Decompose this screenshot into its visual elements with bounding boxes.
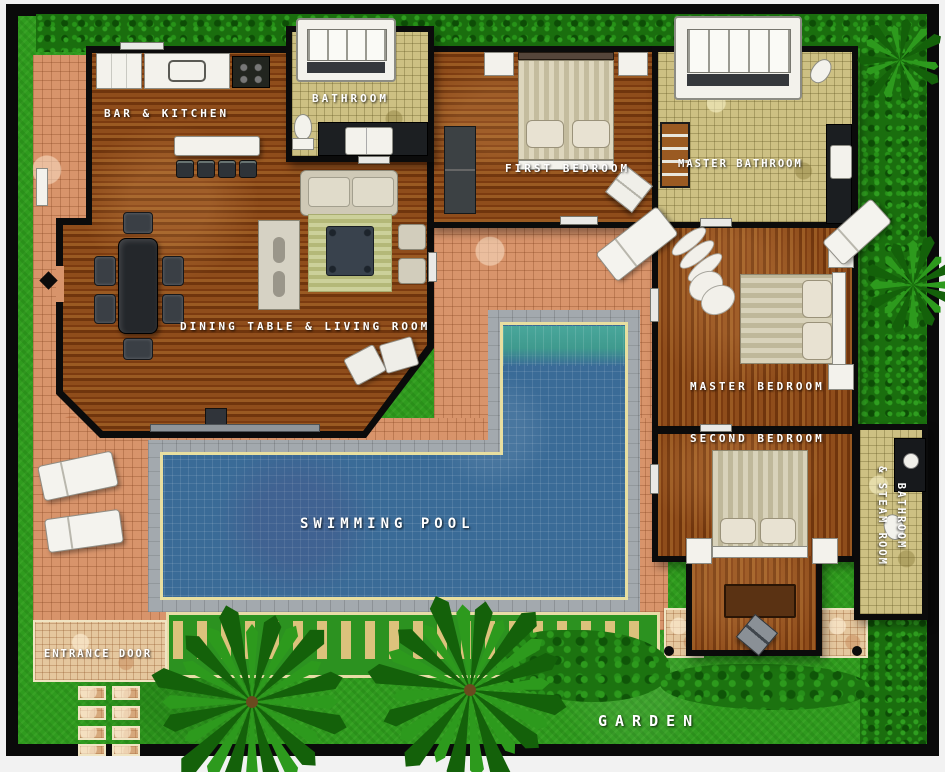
label-dining-living: DINING TABLE & LIVING ROOM: [180, 320, 430, 333]
stoop-post-right: [852, 646, 862, 656]
palm-tree-icon: [142, 592, 362, 772]
nightstand: [828, 364, 854, 390]
bed-pillow: [802, 322, 832, 360]
label-first-bedroom: FIRST BEDROOM: [505, 162, 630, 175]
bed-pillow: [526, 120, 564, 148]
nightstand: [812, 538, 838, 564]
living-door-gap: [56, 266, 64, 302]
dining-chair: [123, 212, 153, 234]
dining-table: [118, 238, 158, 334]
door-marker: [700, 218, 732, 227]
label-bathroom: BATHROOM: [312, 92, 389, 105]
villa-floor-plan: BAR & KITCHEN BATHROOM FIRST BEDROOM MAS…: [0, 0, 945, 772]
stepping-stone: [78, 726, 106, 740]
wardrobe: [444, 126, 476, 214]
stepping-stone: [78, 744, 106, 756]
towel-ladder: [660, 122, 690, 188]
dining-chair: [94, 256, 116, 286]
door-marker: [650, 464, 659, 494]
stepping-stone: [78, 686, 106, 700]
label-steam-room: BATHROOM & STEAM ROOM: [870, 436, 910, 596]
bar-stool: [176, 160, 194, 178]
terrace-bench: [36, 168, 48, 206]
second-bed-base: [712, 546, 808, 558]
toilet-tank: [292, 138, 314, 150]
stepping-stone: [112, 686, 140, 700]
label-master-bathroom: MASTER BATHROOM: [678, 158, 803, 170]
deck-bench: [724, 584, 796, 618]
bed-pillow: [572, 120, 610, 148]
palm-tree-icon: [360, 580, 580, 772]
door-marker: [650, 288, 659, 322]
kitchen-cabinet: [96, 53, 142, 89]
door-marker: [358, 156, 390, 164]
dining-chair: [123, 338, 153, 360]
right-hedge: [860, 14, 927, 744]
window-marker: [120, 42, 164, 50]
master-bathtub: [674, 16, 802, 100]
armchair: [398, 258, 426, 284]
bed-pillow: [720, 518, 756, 544]
pool-shallow-steps: [503, 326, 625, 366]
dining-chair: [94, 294, 116, 324]
bed-pillow: [802, 280, 832, 318]
dining-chair: [162, 256, 184, 286]
first-bed-headboard: [518, 52, 614, 60]
label-swimming-pool: SWIMMING POOL: [300, 516, 475, 532]
stepping-stone: [112, 744, 140, 756]
bed-pillow: [760, 518, 796, 544]
nightstand: [484, 52, 514, 76]
door-marker: [428, 252, 437, 282]
label-master-bedroom: MASTER BEDROOM: [690, 380, 825, 393]
terrace-threshold: [150, 424, 320, 432]
stepping-stone: [112, 706, 140, 720]
stoop-post-left: [664, 646, 674, 656]
sideboard-cabinet: [258, 220, 300, 310]
toilet: [294, 114, 312, 140]
stepping-stone: [78, 706, 106, 720]
kitchen-sink: [168, 60, 206, 82]
label-steam-room-line1: BATHROOM: [891, 436, 910, 596]
nightstand: [686, 538, 712, 564]
fern-plant-icon: [858, 230, 945, 340]
bathroom-vanity: [318, 122, 428, 156]
coffee-table: [326, 226, 374, 276]
door-marker: [700, 424, 732, 432]
label-second-bedroom: SECOND BEDROOM: [690, 432, 825, 445]
sofa: [300, 170, 398, 216]
fern-plant-icon: [850, 10, 945, 110]
bar-stool: [239, 160, 257, 178]
stepping-stone: [112, 726, 140, 740]
label-steam-room-line2: & STEAM ROOM: [872, 436, 891, 596]
kitchen-stove: [232, 56, 270, 88]
master-bed-headboard: [832, 272, 846, 366]
armchair: [398, 224, 426, 250]
master-bath-counter: [826, 124, 852, 224]
label-entrance-door: ENTRANCE DOOR: [44, 648, 152, 660]
bar-stool: [197, 160, 215, 178]
door-marker: [560, 216, 598, 225]
label-garden: GARDEN: [598, 712, 700, 730]
bathtub: [296, 18, 396, 82]
bar-stool: [218, 160, 236, 178]
label-bar-kitchen: BAR & KITCHEN: [104, 107, 229, 120]
bar-counter: [174, 136, 260, 156]
nightstand: [618, 52, 648, 76]
